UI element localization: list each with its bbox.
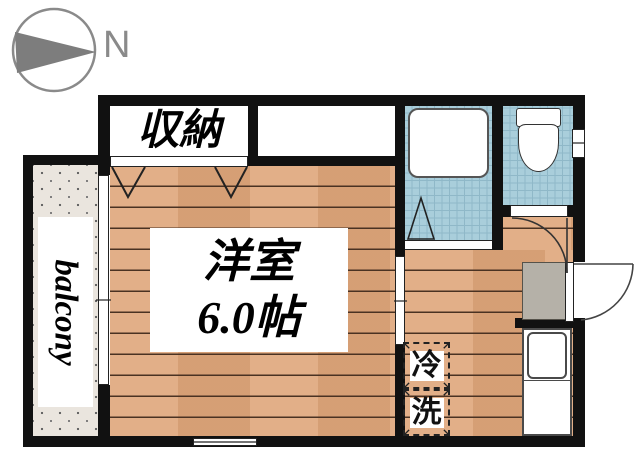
wall-void-bottom	[258, 156, 395, 166]
washer-label: 洗	[410, 398, 444, 428]
floor-plan: N 冷 洗	[0, 0, 640, 455]
north-label: N	[103, 26, 130, 64]
wall-toilet-door-stub-left	[503, 205, 510, 217]
wall-balcony-left	[23, 155, 33, 447]
wall-right-lower	[573, 322, 585, 447]
wall-closet-divider	[248, 95, 258, 166]
fridge-label: 冷	[410, 351, 444, 381]
balcony-label-strip: balcony	[38, 217, 93, 407]
balcony-sliding-door	[98, 175, 109, 385]
hallway-floor-upper	[503, 217, 573, 250]
wall-top	[98, 95, 585, 106]
kitchen-counter-divider	[523, 380, 571, 381]
room-size: 6.0帖	[197, 290, 301, 346]
room-name: 洋室	[203, 234, 295, 290]
entrance-genkan	[522, 262, 568, 320]
room-label-box: 洋室 6.0帖	[150, 228, 348, 352]
entrance-door-frame	[565, 262, 574, 322]
washer-placement-box: 洗	[403, 389, 450, 436]
toilet-window	[572, 129, 585, 158]
closet-label: 収納	[110, 106, 248, 156]
hallway-sliding-door	[395, 256, 405, 345]
bathtub-icon	[408, 108, 489, 178]
wall-bath-toilet-divider	[492, 95, 503, 250]
wall-right-upper	[573, 95, 585, 262]
wall-toilet-door-stub-right	[568, 205, 573, 217]
kitchen-sink-icon	[527, 332, 567, 379]
bathroom-door-threshold	[405, 240, 492, 250]
wall-room-left-lower	[98, 385, 110, 447]
toilet-door-threshold	[510, 205, 568, 217]
upper-void-box	[258, 106, 395, 156]
fridge-placement-box: 冷	[403, 342, 450, 389]
compass-icon	[13, 9, 96, 91]
wall-balcony-top	[23, 155, 110, 165]
wall-room-right-upper	[395, 95, 405, 256]
balcony-label: balcony	[47, 259, 84, 365]
entrance-door-swing-icon	[574, 264, 633, 320]
closet-folding-door-track	[110, 156, 248, 167]
south-window	[193, 438, 257, 446]
